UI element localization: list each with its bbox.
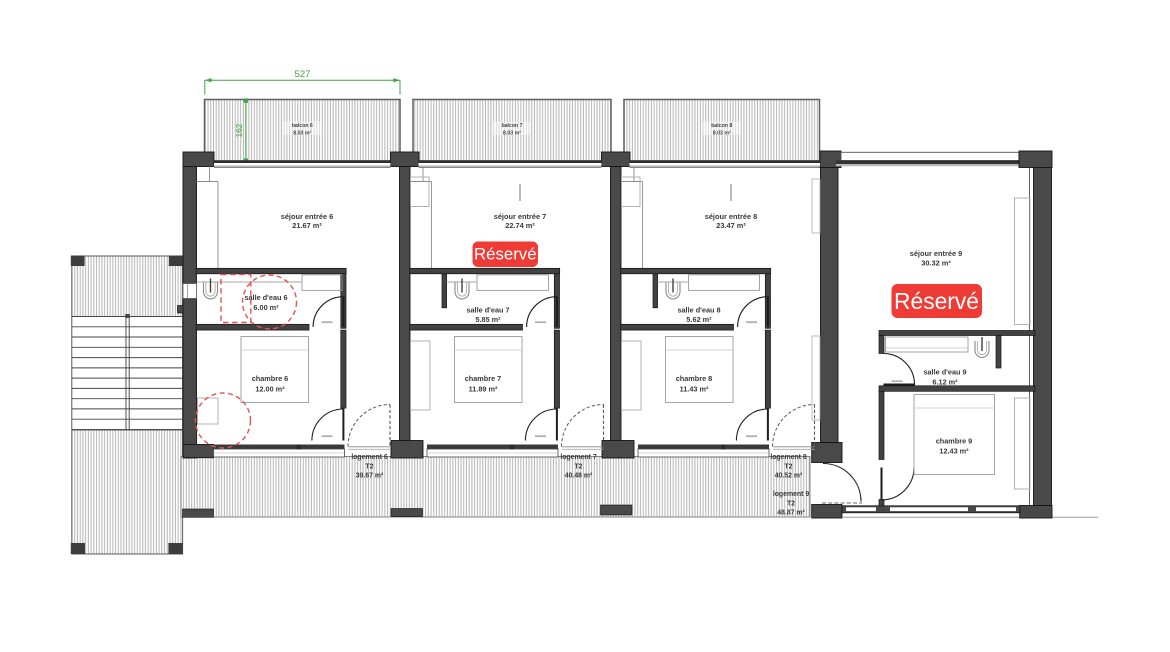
- svg-text:21.67 m²: 21.67 m²: [292, 221, 322, 230]
- svg-text:séjour entrée 8: séjour entrée 8: [705, 212, 758, 221]
- svg-text:6.00 m²: 6.00 m²: [253, 303, 279, 312]
- svg-text:chambre 8: chambre 8: [676, 374, 713, 383]
- svg-text:30.32 m²: 30.32 m²: [921, 258, 951, 267]
- svg-text:T2: T2: [365, 463, 373, 470]
- svg-text:22.74 m²: 22.74 m²: [505, 221, 535, 230]
- svg-text:chambre 6: chambre 6: [252, 374, 289, 383]
- svg-text:T2: T2: [784, 463, 792, 470]
- svg-text:23.47 m²: 23.47 m²: [716, 221, 746, 230]
- svg-text:salle d'eau 7: salle d'eau 7: [466, 306, 509, 315]
- svg-text:40.52 m²: 40.52 m²: [775, 473, 803, 480]
- svg-text:T2: T2: [787, 501, 795, 508]
- svg-text:48.87 m²: 48.87 m²: [777, 510, 805, 517]
- svg-text:6.12 m²: 6.12 m²: [932, 378, 958, 387]
- svg-text:balcon 7: balcon 7: [501, 123, 522, 129]
- svg-text:12.43 m²: 12.43 m²: [939, 447, 969, 456]
- svg-text:5.85 m²: 5.85 m²: [475, 315, 501, 324]
- svg-text:balcon 8: balcon 8: [711, 123, 732, 129]
- svg-text:séjour entrée 6: séjour entrée 6: [281, 212, 334, 221]
- svg-text:salle d'eau 9: salle d'eau 9: [923, 368, 966, 377]
- svg-text:Réservé: Réservé: [474, 245, 537, 264]
- svg-text:logement 8: logement 8: [770, 454, 807, 461]
- svg-text:12.00 m²: 12.00 m²: [255, 385, 285, 394]
- svg-text:balcon 6: balcon 6: [292, 123, 313, 129]
- svg-text:logement 7: logement 7: [560, 454, 597, 461]
- svg-text:Réservé: Réservé: [894, 288, 979, 314]
- svg-text:séjour entrée 9: séjour entrée 9: [910, 249, 963, 258]
- svg-text:39.67 m²: 39.67 m²: [356, 473, 384, 480]
- svg-text:T2: T2: [574, 463, 582, 470]
- svg-text:salle d'eau 8: salle d'eau 8: [677, 306, 720, 315]
- svg-text:8.03 m²: 8.03 m²: [713, 131, 731, 137]
- svg-text:11.43 m²: 11.43 m²: [680, 385, 709, 394]
- svg-text:chambre 9: chambre 9: [936, 437, 973, 446]
- svg-text:chambre 7: chambre 7: [465, 374, 502, 383]
- svg-text:logement 9: logement 9: [773, 491, 810, 498]
- svg-text:162: 162: [235, 123, 244, 137]
- svg-text:logement 6: logement 6: [351, 454, 388, 461]
- svg-text:8.03 m²: 8.03 m²: [503, 131, 521, 137]
- svg-text:séjour entrée 7: séjour entrée 7: [494, 212, 547, 221]
- svg-text:40.48 m²: 40.48 m²: [565, 473, 593, 480]
- svg-text:8.03 m²: 8.03 m²: [293, 131, 311, 137]
- svg-text:11.89 m²: 11.89 m²: [469, 385, 498, 394]
- svg-text:5.62 m²: 5.62 m²: [686, 315, 712, 324]
- svg-text:527: 527: [294, 69, 310, 80]
